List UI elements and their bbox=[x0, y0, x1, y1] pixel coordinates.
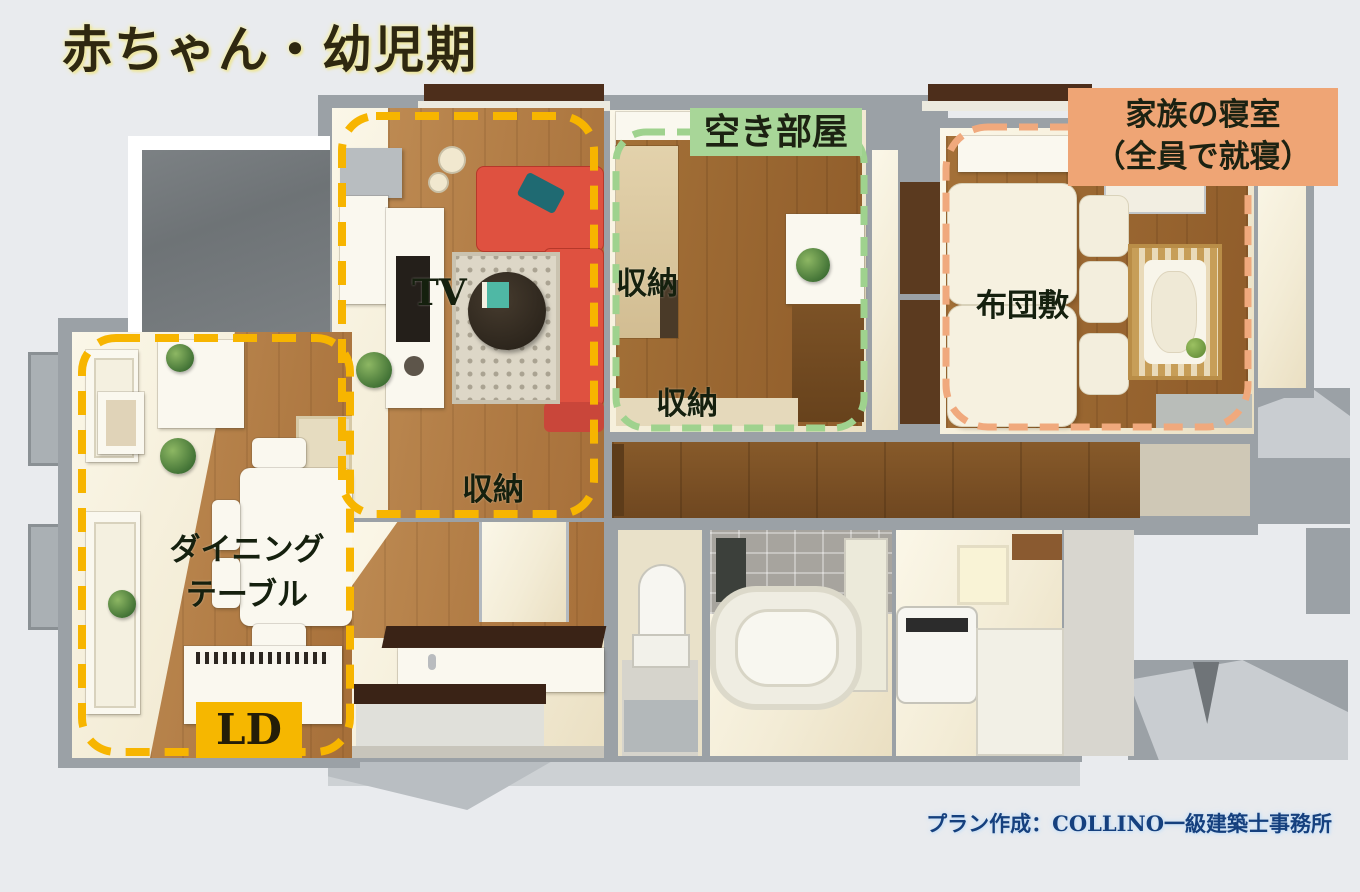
piano-keys bbox=[196, 652, 330, 664]
dining-table-label: ダイニング テーブル bbox=[162, 528, 332, 618]
kitchen-island-base bbox=[356, 704, 544, 746]
kitchen-faucet bbox=[428, 654, 436, 670]
cabinet-plant bbox=[166, 344, 194, 372]
page-title: 赤ちゃん・幼児期 bbox=[62, 10, 478, 82]
windowsill-plant bbox=[108, 590, 136, 618]
hallway-strip bbox=[1064, 530, 1134, 756]
floor-lamp-shade-2 bbox=[430, 174, 447, 191]
dining-table-label-line2: テーブル bbox=[186, 577, 308, 613]
family-bedroom-label: 家族の寝室 （全員で就寝） bbox=[1068, 88, 1338, 186]
wic-closet-upper bbox=[900, 182, 944, 294]
toilet-tank bbox=[634, 636, 688, 666]
ld-label: LD bbox=[196, 702, 302, 758]
futon-pillow-1 bbox=[1080, 196, 1128, 256]
dining-table-label-line1: ダイニング bbox=[170, 532, 325, 568]
ld-label-text: LD bbox=[216, 702, 282, 759]
washing-machine-slot bbox=[906, 618, 968, 632]
futon-pillow-3 bbox=[1080, 334, 1128, 394]
tv-label: TV bbox=[412, 272, 467, 314]
crib-toy bbox=[1186, 338, 1206, 358]
empty-room-cabinet-right bbox=[792, 304, 864, 422]
washroom-counter bbox=[978, 630, 1062, 754]
dining-chair-top bbox=[252, 438, 306, 468]
bathtub-inner bbox=[738, 612, 836, 684]
corridor-left-step bbox=[612, 444, 624, 516]
kitchen-wood-floor bbox=[352, 522, 604, 638]
sofa-chaise bbox=[544, 402, 604, 432]
family-bedroom-label-line1: 家族の寝室 bbox=[1126, 95, 1281, 137]
toilet-door bbox=[624, 700, 698, 752]
family-bedroom-label-line2: （全員で就寝） bbox=[1095, 137, 1312, 179]
storage-label-2: 収納 bbox=[656, 378, 718, 423]
void-interior bbox=[142, 150, 330, 336]
kitchen-upper-counter bbox=[340, 148, 402, 198]
coffee-table-book bbox=[482, 282, 509, 308]
shower-fixture bbox=[716, 538, 746, 602]
bedroom-gray-mat bbox=[1156, 394, 1252, 428]
wic-strip bbox=[872, 150, 898, 430]
storage-label-3: 収納 bbox=[462, 464, 524, 509]
empty-room-label: 空き部屋 bbox=[690, 108, 862, 156]
right-closet-interior bbox=[1258, 152, 1306, 388]
corridor-floor bbox=[612, 442, 1140, 518]
kitchen-counter-top bbox=[382, 626, 607, 648]
washroom-upper-cabinet bbox=[1012, 534, 1062, 560]
credit-line: プラン作成：COLLINO一級建築士事務所 bbox=[926, 808, 1332, 838]
futon-pillow-2 bbox=[1080, 262, 1128, 322]
wic-closet-lower bbox=[900, 300, 944, 424]
kitchen-partition-wall bbox=[482, 522, 566, 622]
wall-picture-inner bbox=[106, 400, 136, 446]
kitchen-wall-shelf bbox=[340, 196, 388, 304]
futon-label: 布団敷 bbox=[976, 280, 1069, 325]
balcony-rail-left bbox=[424, 84, 604, 101]
empty-room-plant bbox=[796, 248, 830, 282]
floor-lamp-shade bbox=[440, 148, 464, 172]
dining-plant bbox=[160, 438, 196, 474]
entrance-floor bbox=[1140, 444, 1250, 516]
exterior-block-right-small bbox=[1306, 528, 1350, 614]
floor-plan-image: 空き部屋 家族の寝室 （全員で就寝） TV 収納 収納 収納 布団敷 ダイニング… bbox=[0, 0, 1360, 892]
kitchen-floor-strip bbox=[352, 746, 604, 758]
washroom-mirror bbox=[960, 548, 1006, 602]
empty-room-label-text: 空き部屋 bbox=[704, 108, 848, 157]
kitchen-island-top bbox=[354, 684, 546, 704]
storage-label-1: 収納 bbox=[616, 258, 678, 303]
living-plant bbox=[356, 352, 392, 388]
tv-speaker-dot bbox=[404, 356, 424, 376]
